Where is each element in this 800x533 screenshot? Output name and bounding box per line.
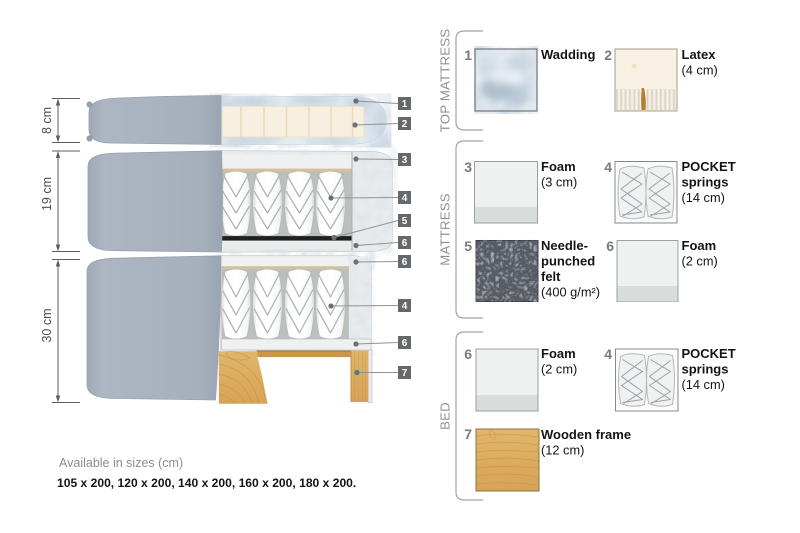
svg-text:springs: springs bbox=[682, 362, 729, 377]
svg-text:(2 cm): (2 cm) bbox=[682, 254, 718, 269]
svg-text:(3 cm): (3 cm) bbox=[541, 175, 577, 190]
svg-text:3: 3 bbox=[464, 159, 472, 175]
svg-text:Needle-: Needle- bbox=[541, 238, 588, 253]
svg-text:punched: punched bbox=[541, 254, 595, 269]
svg-text:(2 cm): (2 cm) bbox=[541, 362, 577, 377]
svg-text:7: 7 bbox=[464, 426, 472, 442]
svg-text:MATTRESS: MATTRESS bbox=[437, 193, 452, 265]
svg-text:Wooden frame: Wooden frame bbox=[541, 427, 631, 442]
svg-text:Foam: Foam bbox=[541, 346, 576, 361]
svg-text:6: 6 bbox=[402, 257, 408, 268]
svg-text:(14 cm): (14 cm) bbox=[682, 190, 725, 205]
svg-text:1: 1 bbox=[464, 47, 472, 63]
svg-text:30 cm: 30 cm bbox=[40, 308, 54, 342]
svg-text:Foam: Foam bbox=[541, 159, 576, 174]
svg-text:6: 6 bbox=[402, 338, 408, 349]
svg-text:105 x 200, 120 x 200, 140 x 20: 105 x 200, 120 x 200, 140 x 200, 160 x 2… bbox=[57, 476, 356, 490]
svg-text:4: 4 bbox=[402, 193, 408, 204]
svg-text:POCKET: POCKET bbox=[682, 159, 736, 174]
svg-text:2: 2 bbox=[604, 47, 612, 63]
svg-text:Latex: Latex bbox=[682, 47, 717, 62]
svg-text:8 cm: 8 cm bbox=[40, 107, 54, 134]
svg-text:7: 7 bbox=[402, 368, 408, 379]
svg-text:TOP MATTRESS: TOP MATTRESS bbox=[437, 29, 452, 133]
svg-text:4: 4 bbox=[402, 301, 408, 312]
svg-text:springs: springs bbox=[682, 175, 729, 190]
svg-text:6: 6 bbox=[464, 346, 472, 362]
svg-text:POCKET: POCKET bbox=[682, 346, 736, 361]
svg-text:19 cm: 19 cm bbox=[40, 177, 54, 211]
svg-text:felt: felt bbox=[541, 269, 561, 284]
svg-text:4: 4 bbox=[604, 346, 612, 362]
svg-text:3: 3 bbox=[402, 155, 408, 166]
svg-text:Foam: Foam bbox=[682, 238, 717, 253]
svg-text:2: 2 bbox=[402, 119, 408, 130]
svg-text:5: 5 bbox=[464, 238, 472, 254]
svg-text:6: 6 bbox=[606, 238, 614, 254]
svg-text:BED: BED bbox=[437, 402, 452, 430]
svg-text:Available in sizes (cm): Available in sizes (cm) bbox=[59, 456, 183, 470]
svg-text:5: 5 bbox=[402, 216, 408, 227]
svg-text:(12 cm): (12 cm) bbox=[541, 443, 584, 458]
svg-text:(400 g/m²): (400 g/m²) bbox=[541, 285, 600, 300]
svg-text:(4 cm): (4 cm) bbox=[682, 63, 718, 78]
svg-text:1: 1 bbox=[402, 99, 408, 110]
svg-text:4: 4 bbox=[604, 159, 612, 175]
svg-text:Wadding: Wadding bbox=[541, 47, 595, 62]
svg-text:(14 cm): (14 cm) bbox=[682, 377, 725, 392]
svg-text:6: 6 bbox=[402, 238, 408, 249]
